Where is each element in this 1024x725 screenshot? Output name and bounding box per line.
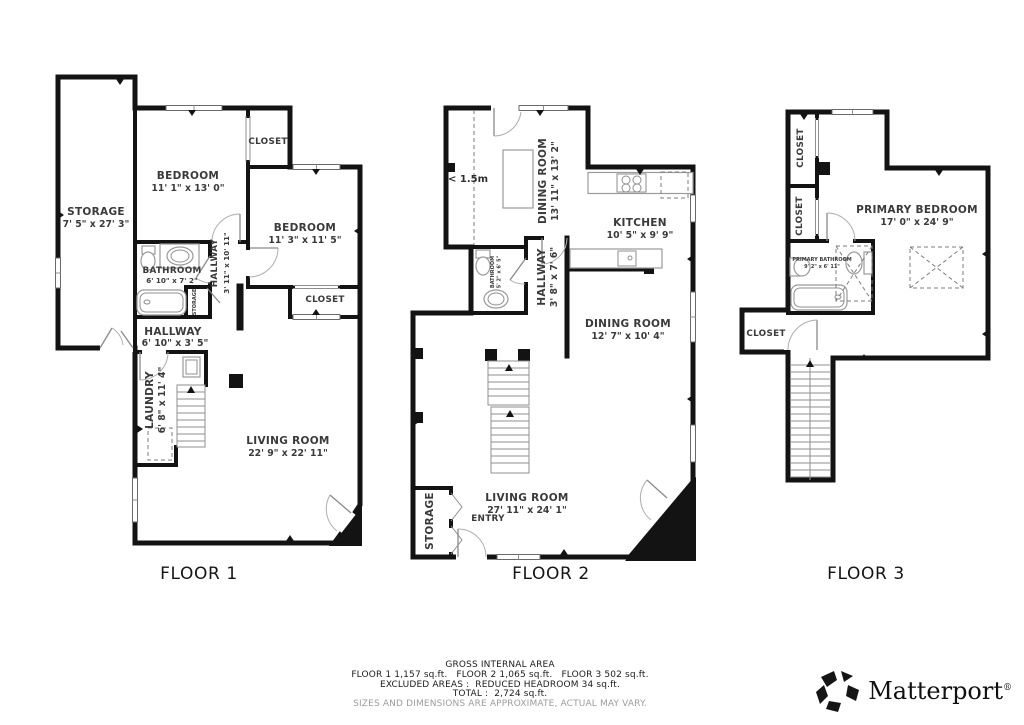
room-label: HALLWAY bbox=[210, 238, 220, 287]
room-label: STORAGE bbox=[424, 492, 436, 550]
room-label: LAUNDRY bbox=[144, 371, 156, 429]
room-label: HALLWAY bbox=[144, 326, 202, 338]
floor2-plan: DINING ROOM 13' 11" x 13' 2" < 1.5m KITC… bbox=[413, 104, 697, 584]
room-label: PRIMARY BATHROOM bbox=[792, 257, 851, 263]
room-dims: 7' 5" x 27' 3" bbox=[63, 219, 130, 230]
stairs-icon bbox=[177, 385, 205, 447]
floor2-title: FLOOR 2 bbox=[512, 564, 590, 584]
room-label: CLOSET bbox=[746, 329, 785, 339]
dining-table-icon bbox=[503, 150, 533, 208]
floor1-plan: STORAGE 7' 5" x 27' 3" BEDROOM 11' 1" x … bbox=[54, 77, 362, 584]
matterport-pinwheel-icon bbox=[815, 668, 861, 712]
room-label: STORAGE bbox=[192, 288, 198, 315]
room-dims: 13' 11" x 13' 2" bbox=[550, 141, 561, 221]
water-heater-icon bbox=[183, 357, 200, 377]
headroom-annotation: < 1.5m bbox=[448, 174, 488, 185]
window-icon bbox=[832, 108, 873, 116]
room-dims: 11' 1" x 13' 0" bbox=[151, 183, 224, 194]
floorplan-page: STORAGE 7' 5" x 27' 3" BEDROOM 11' 1" x … bbox=[0, 0, 1024, 725]
bathtub-icon bbox=[791, 285, 847, 310]
room-dims: 22' 9" x 22' 11" bbox=[248, 448, 328, 459]
room-label: CLOSET bbox=[795, 196, 805, 235]
room-label: BEDROOM bbox=[274, 222, 336, 234]
room-dims: 11' 3" x 11' 5" bbox=[268, 235, 341, 246]
toilet-icon bbox=[846, 252, 872, 274]
headroom-marker bbox=[446, 163, 455, 172]
room-label: BATHROOM bbox=[142, 266, 201, 276]
island-sink-icon bbox=[570, 249, 662, 268]
sink-icon bbox=[484, 290, 508, 308]
registered-mark: ® bbox=[1003, 683, 1012, 693]
room-label: CLOSET bbox=[248, 137, 287, 147]
matterport-wordmark: Matterport® bbox=[868, 666, 1012, 713]
room-label: CLOSET bbox=[305, 295, 344, 305]
room-dims: 27' 11" x 24' 1" bbox=[487, 505, 567, 516]
stairs-icon bbox=[485, 349, 530, 473]
room-dims: 3' 8" x 7' 6" bbox=[549, 247, 560, 307]
room-dims: 10' 5" x 9' 9" bbox=[607, 230, 674, 241]
room-dims: 6' 8" x 11' 4" bbox=[157, 367, 168, 434]
room-label: LIVING ROOM bbox=[485, 492, 568, 504]
room-label: CLOSET bbox=[796, 128, 806, 167]
room-label: PRIMARY BEDROOM bbox=[856, 204, 978, 216]
room-label: BATHROOM bbox=[490, 256, 496, 288]
floorplan-drawing: STORAGE 7' 5" x 27' 3" BEDROOM 11' 1" x … bbox=[0, 0, 1024, 725]
room-dims: 6' 10" x 3' 5" bbox=[142, 338, 209, 349]
room-label: BEDROOM bbox=[157, 170, 219, 182]
room-label: HALLWAY bbox=[536, 248, 548, 306]
room-label: KITCHEN bbox=[613, 217, 667, 229]
room-dims: 6' 10" x 7' 2" bbox=[146, 276, 198, 285]
floor3-title: FLOOR 3 bbox=[827, 564, 905, 584]
floor1-title: FLOOR 1 bbox=[160, 564, 238, 584]
sink-icon bbox=[160, 244, 199, 268]
room-dims: 5' 2" x 6' 5" bbox=[497, 255, 503, 288]
room-label: DINING ROOM bbox=[537, 138, 549, 224]
room-label: DINING ROOM bbox=[585, 318, 671, 330]
matterport-logo: Matterport® bbox=[815, 666, 1012, 713]
room-label: LIVING ROOM bbox=[246, 435, 329, 447]
fireplace-icon bbox=[229, 374, 243, 388]
toilet-icon bbox=[476, 250, 490, 275]
room-label: STORAGE bbox=[67, 206, 125, 218]
bathtub-icon bbox=[137, 290, 186, 315]
room-dims: 3' 11" x 10' 11" bbox=[222, 232, 231, 294]
floor3-plan: CLOSET CLOSET PRIMARY BEDROOM 17' 0" x 2… bbox=[742, 108, 988, 584]
room-dims: 9' 2" x 6' 11" bbox=[804, 264, 840, 270]
room-dims: 12' 7" x 10' 4" bbox=[591, 331, 664, 342]
room-dims: 17' 0" x 24' 9" bbox=[880, 217, 953, 228]
